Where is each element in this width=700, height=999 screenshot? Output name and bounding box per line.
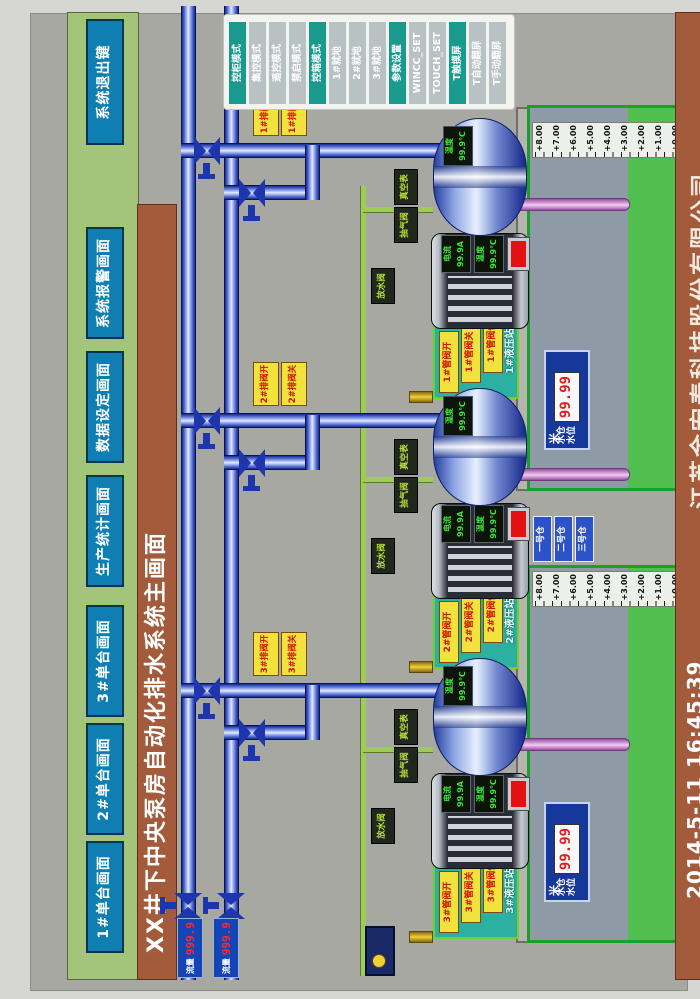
company-name: 江苏金宏泰科技股份有限公司 [682,171,700,509]
crossover-elbow [305,145,320,200]
pump-unit-1: 1#排阀开 1#排阀关 放水阀 抽气阀 真空表 1#管阀开 1#管阀关 1#管阀… [31,89,700,399]
vacuum-pump-gauge-icon [372,954,386,968]
readout-label: 电流 [443,516,452,532]
readout-value: 99.9℃ [458,671,467,700]
motor-status-lamp [508,238,529,270]
motor-fins-icon [448,276,512,322]
readout-value: 99.9℃ [489,239,498,268]
button-wincc-set[interactable]: WINCC_SET [409,22,426,104]
riser-valve[interactable] [194,677,220,705]
footer-bar: 2014-5-11 16:45:39 江苏金宏泰科技股份有限公司 [675,12,700,980]
valve-stem-icon [248,205,255,216]
vacuum-gauge-label: 真空表 [394,169,418,205]
readout-value: 99.9℃ [458,131,467,160]
pump-casing-band [434,706,526,728]
valve-stem-icon [248,745,255,756]
readout-value: 99.9℃ [489,779,498,808]
station-valve-label-2: 3#管阀关 [461,861,481,923]
readout-label: 温度 [445,138,454,154]
readout-label: 电流 [443,786,452,802]
readout-value: 99.9A [456,241,465,267]
flow-label: 流量 [221,958,232,974]
pump-motor: 电流 99.9A 温度 99.9℃ [431,503,529,599]
pump-unit-2: 2#排阀开 2#排阀关 放水阀 抽气阀 真空表 2#管阀开 2#管阀关 2#管阀… [31,359,700,669]
valve-stem-icon [248,475,255,486]
mode-button-remote[interactable]: 遥控模式 [269,22,286,104]
readout-value: 99.9℃ [458,401,467,430]
motor-current-readout: 电流 99.9A [441,235,471,273]
pump-motor: 电流 99.9A 温度 99.9℃ [431,773,529,869]
readout-label: 温度 [476,786,485,802]
discharge-valve-open-label: 3#排阀开 [253,632,279,676]
mode-button-pump1-local[interactable]: 1#就地 [329,22,346,104]
pump-temp-display: 温度 99.9℃ [443,666,473,706]
mode-button-pump2-local[interactable]: 2#就地 [349,22,366,104]
drain-valve-label: 放水阀 [371,538,395,574]
motor-current-readout: 电流 99.9A [441,775,471,813]
riser-valve[interactable] [194,137,220,165]
crossover-valve[interactable] [239,449,265,477]
pump-unit-3: 3#排阀开 3#排阀关 放水阀 抽气阀 真空表 3#管阀开 3#管阀关 3#管阀… [31,629,700,939]
valve-stem-icon [203,433,210,444]
discharge-valve-closed-label: 3#排阀关 [281,632,307,676]
mode-button-start-inhibit[interactable]: 禁启模式 [289,22,306,104]
vacuum-gauge-label: 真空表 [394,439,418,475]
button-manual-page-flip[interactable]: T手动翻屏 [489,22,506,104]
hmi-stage-rotated: 1#单台画面 2#单台画面 3#单台画面 生产统计画面 数据设定画面 系统报警画… [0,0,700,999]
vacuum-gauge-label: 真空表 [394,709,418,745]
button-parameter-settings[interactable]: 参数设置 [389,22,406,104]
button-touch-screen[interactable]: T触摸屏 [449,22,466,104]
crossover-valve[interactable] [239,179,265,207]
drain-valve-label: 放水阀 [371,808,395,844]
readout-value: 99.9A [456,781,465,807]
discharge-valve-closed-label: 2#排阀关 [281,362,307,406]
motor-temp-readout: 温度 99.9℃ [474,235,504,273]
hand-pump-icon [409,931,433,943]
readout-label: 温度 [476,246,485,262]
motor-temp-readout: 温度 99.9℃ [474,775,504,813]
riser-valve[interactable] [194,407,220,435]
motor-status-lamp [508,508,529,540]
mode-button-pump3-local[interactable]: 3#就地 [369,22,386,104]
pump-casing-band [434,436,526,458]
motor-temp-readout: 温度 99.9℃ [474,505,504,543]
vacuum-valve-label: 抽气阀 [394,747,418,783]
hmi-screen: 1#单台画面 2#单台画面 3#单台画面 生产统计画面 数据设定画面 系统报警画… [30,13,688,991]
button-touch-set[interactable]: TOUCH_SET [429,22,446,104]
motor-status-lamp [508,778,529,810]
readout-value: 99.9A [456,511,465,537]
crossover-elbow [305,685,320,740]
pump-temp-display: 温度 99.9℃ [443,396,473,436]
station-valve-label-1: 3#管阀开 [439,871,459,933]
vacuum-valve-label: 抽气阀 [394,207,418,243]
readout-value: 99.9℃ [489,509,498,538]
crossover-elbow [305,415,320,470]
readout-label: 温度 [445,678,454,694]
crossover-valve[interactable] [239,719,265,747]
valve-stem-icon [203,163,210,174]
motor-fins-icon [448,546,512,592]
pump-temp-display: 温度 99.9℃ [443,126,473,166]
pump-casing-band [434,166,526,188]
mode-button-local-box[interactable]: 控箱模式 [309,22,326,104]
drain-valve-label: 放水阀 [371,268,395,304]
datetime-display: 2014-5-11 16:45:39 [683,661,700,899]
motor-fins-icon [448,816,512,862]
discharge-valve-open-label: 2#排阀开 [253,362,279,406]
vacuum-valve-label: 抽气阀 [394,477,418,513]
mode-button-centralized[interactable]: 集控模式 [249,22,266,104]
readout-label: 温度 [476,516,485,532]
flow-label: 流量 [185,958,196,974]
readout-label: 电流 [443,246,452,262]
pump-motor: 电流 99.9A 温度 99.9℃ [431,233,529,329]
mode-button-cabinet[interactable]: 控柜模式 [229,22,246,104]
scanned-hmi-screenshot: 1#单台画面 2#单台画面 3#单台画面 生产统计画面 数据设定画面 系统报警画… [0,0,700,999]
motor-current-readout: 电流 99.9A [441,505,471,543]
valve-stem-icon [203,703,210,714]
button-auto-page-flip[interactable]: T自动翻屏 [469,22,486,104]
readout-label: 温度 [445,408,454,424]
